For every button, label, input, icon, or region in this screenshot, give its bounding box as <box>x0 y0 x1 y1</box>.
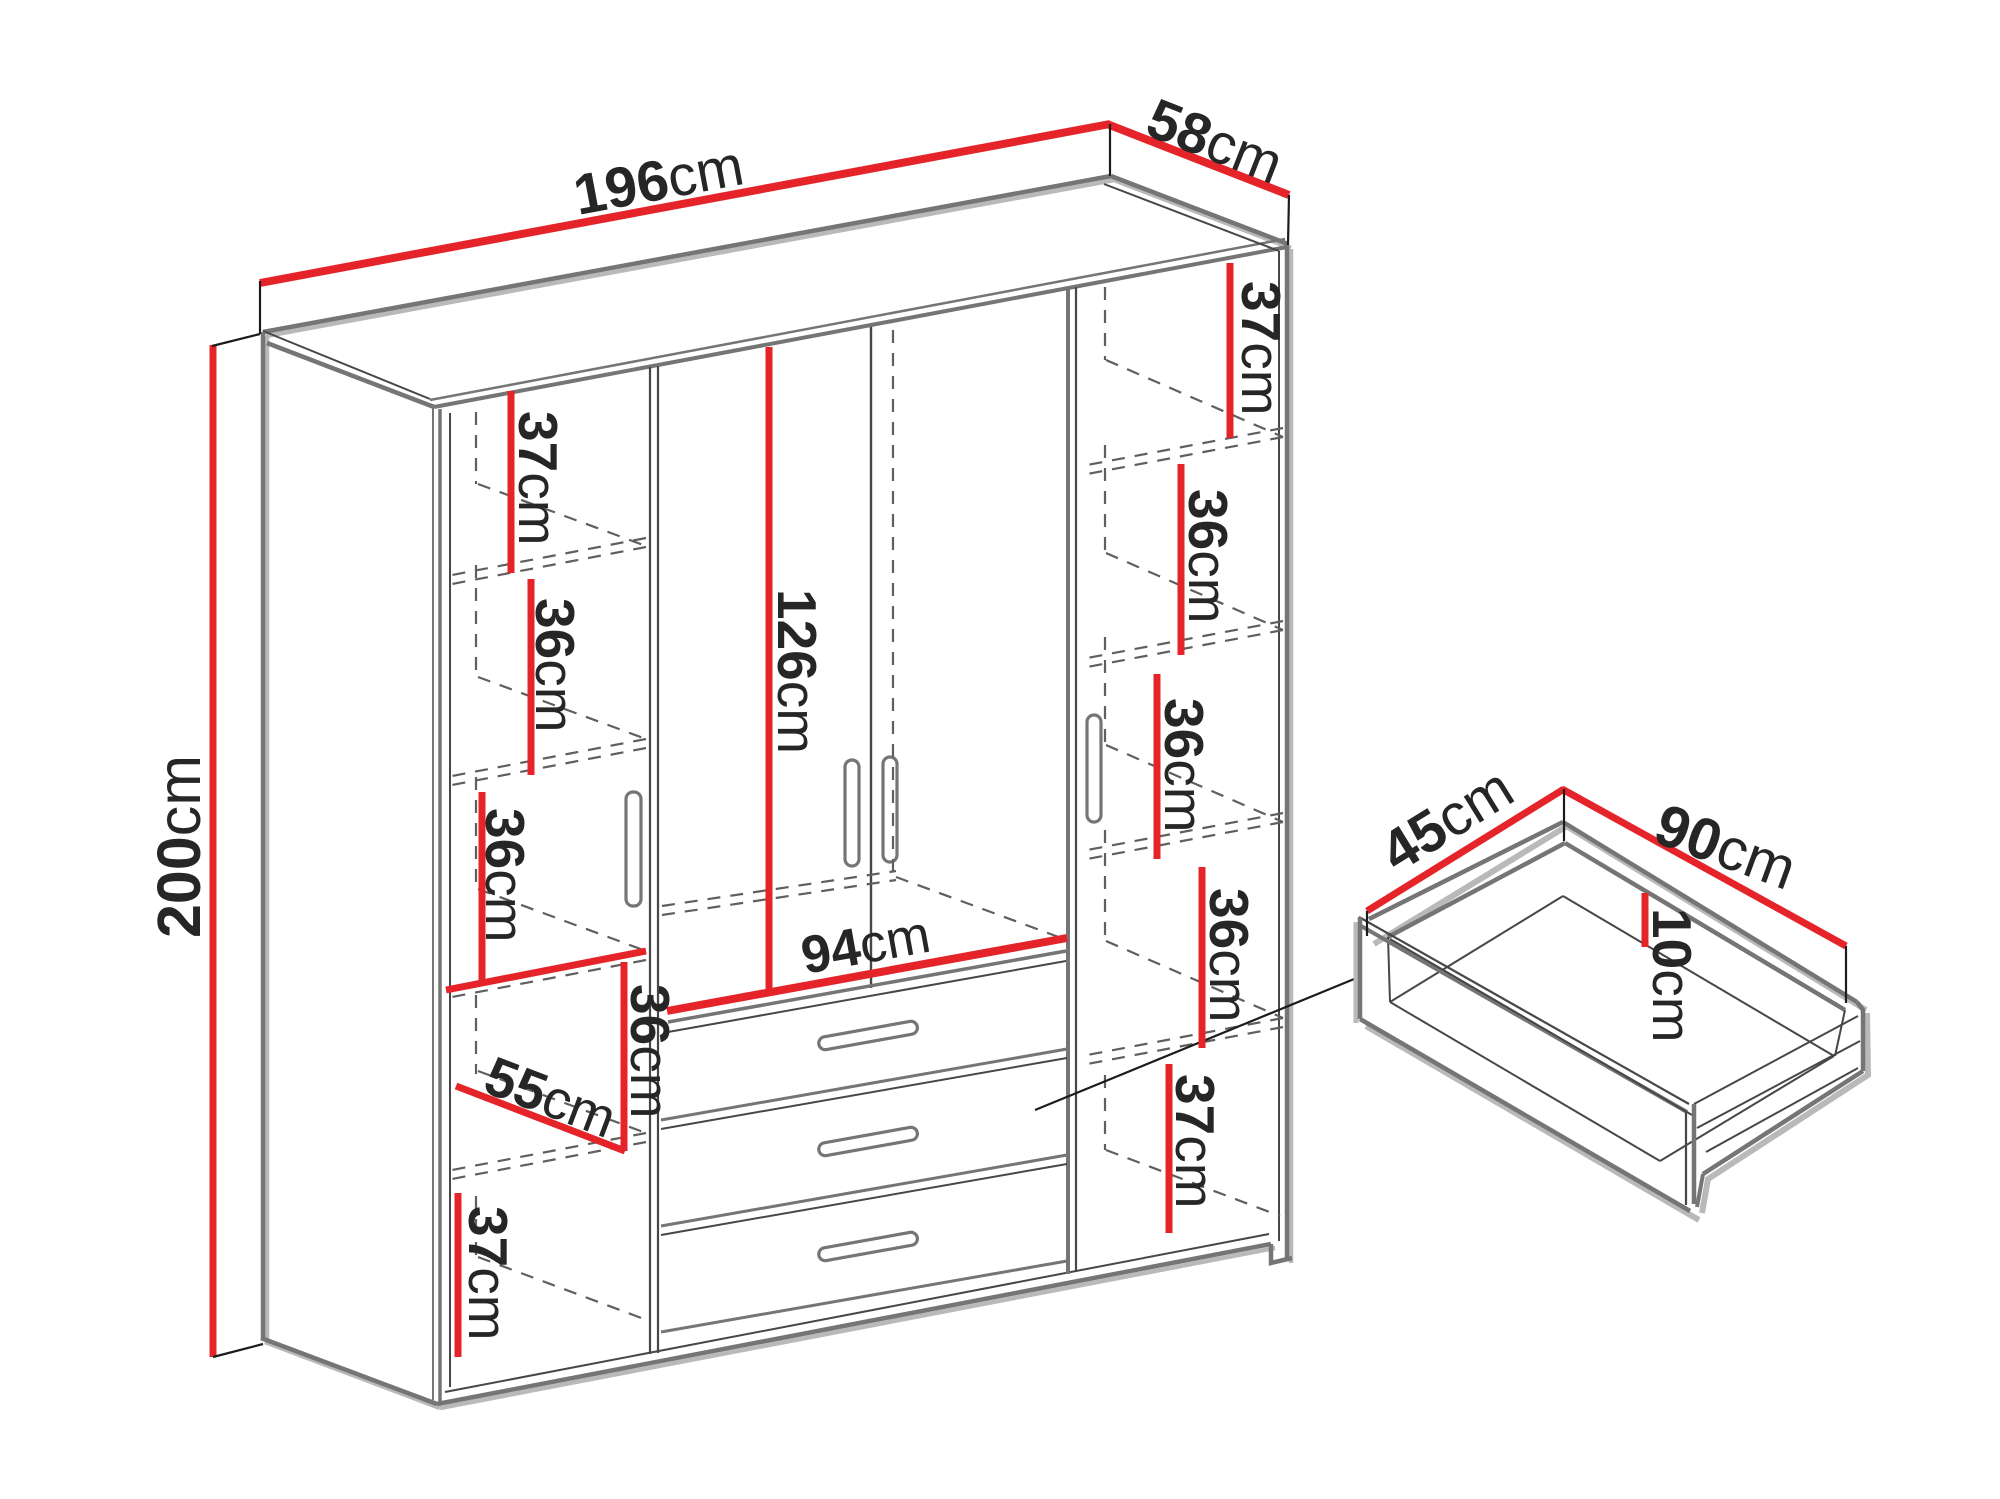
svg-text:10cm: 10cm <box>1641 908 1703 1043</box>
svg-text:126cm: 126cm <box>766 589 828 754</box>
svg-text:37cm: 37cm <box>1230 281 1292 416</box>
svg-text:36cm: 36cm <box>524 598 586 733</box>
svg-text:200cm: 200cm <box>145 755 213 938</box>
svg-text:37cm: 37cm <box>507 411 569 546</box>
svg-text:36cm: 36cm <box>1177 489 1239 624</box>
svg-text:36cm: 36cm <box>619 984 681 1119</box>
svg-text:36cm: 36cm <box>1153 698 1215 833</box>
svg-text:36cm: 36cm <box>1198 888 1260 1023</box>
svg-text:37cm: 37cm <box>457 1206 519 1341</box>
svg-text:36cm: 36cm <box>474 808 536 943</box>
svg-text:37cm: 37cm <box>1164 1074 1226 1209</box>
